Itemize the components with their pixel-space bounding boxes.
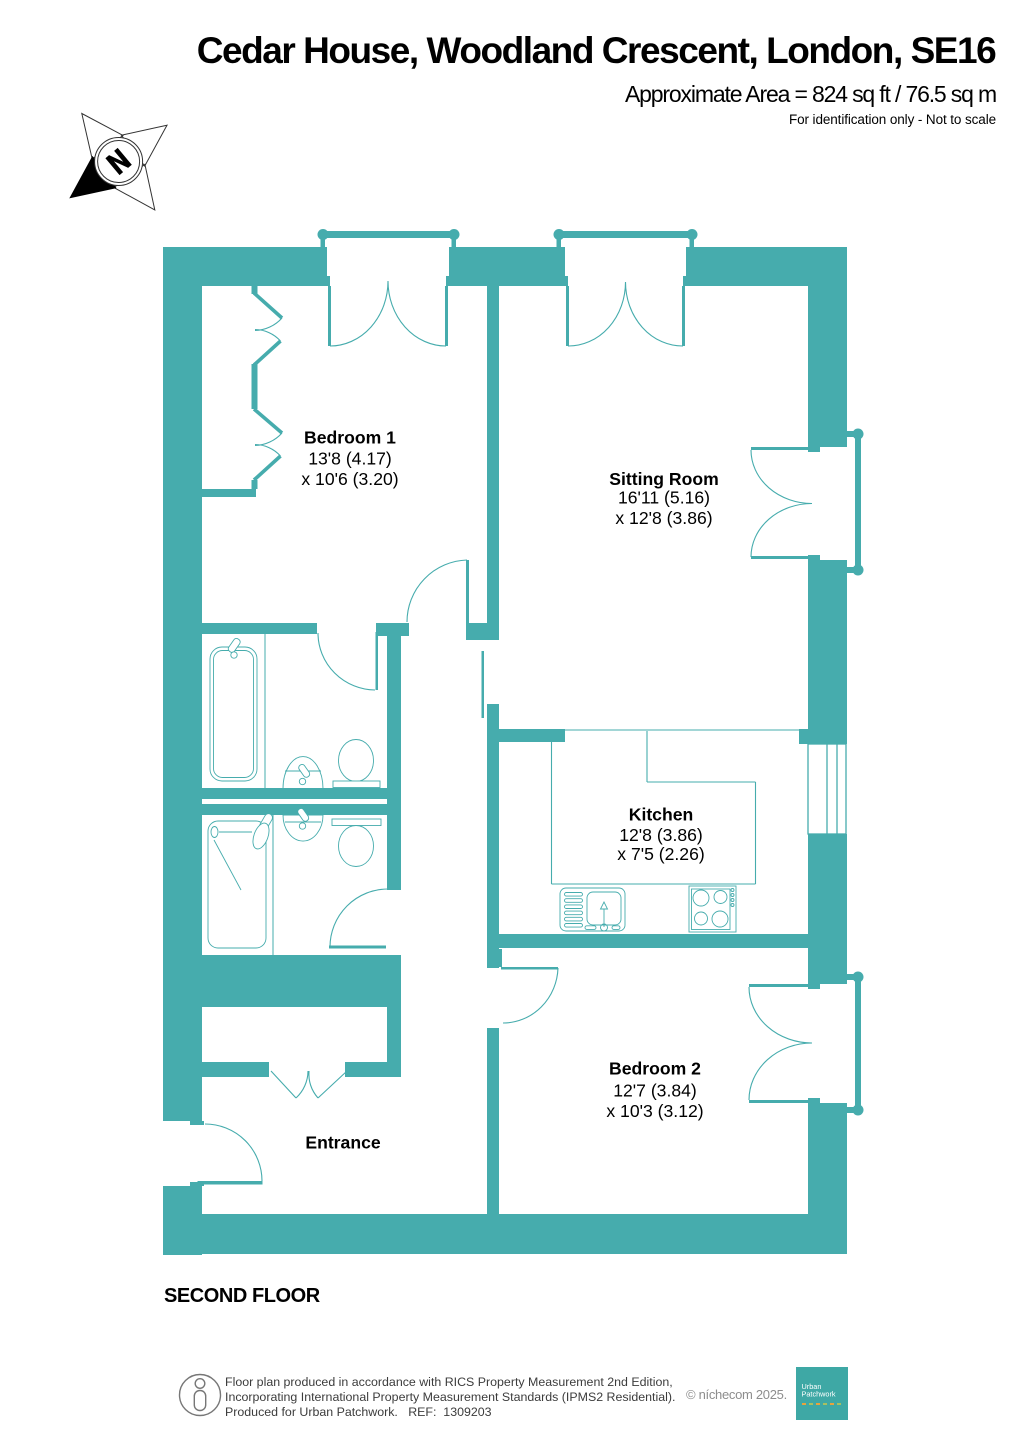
svg-text:13'8 (4.17): 13'8 (4.17) — [308, 449, 392, 469]
svg-text:12'7 (3.84): 12'7 (3.84) — [613, 1081, 697, 1101]
svg-text:x 7'5 (2.26): x 7'5 (2.26) — [617, 844, 704, 864]
svg-text:Patchwork: Patchwork — [802, 1390, 836, 1399]
svg-text:Bedroom 1: Bedroom 1 — [304, 428, 396, 448]
svg-text:Kitchen: Kitchen — [629, 805, 694, 825]
svg-text:Produced for Urban Patchwork.: Produced for Urban Patchwork. REF: 13092… — [225, 1405, 492, 1419]
svg-text:© níchecom 2025.: © níchecom 2025. — [686, 1387, 787, 1402]
svg-text:Incorporating International Pr: Incorporating International Property Mea… — [225, 1390, 675, 1404]
svg-text:Cedar House, Woodland Crescent: Cedar House, Woodland Crescent, London, … — [197, 30, 996, 71]
svg-text:Sitting Room: Sitting Room — [609, 469, 718, 489]
svg-text:Entrance: Entrance — [305, 1133, 381, 1153]
svg-text:Bedroom 2: Bedroom 2 — [609, 1059, 701, 1079]
svg-text:x 10'3 (3.12): x 10'3 (3.12) — [606, 1101, 703, 1121]
svg-text:16'11 (5.16): 16'11 (5.16) — [618, 488, 710, 508]
svg-text:SECOND FLOOR: SECOND FLOOR — [164, 1285, 321, 1307]
svg-text:Approximate Area = 824 sq ft /: Approximate Area = 824 sq ft / 76.5 sq m — [625, 81, 996, 107]
svg-text:x 10'6 (3.20): x 10'6 (3.20) — [301, 469, 398, 489]
svg-text:x 12'8 (3.86): x 12'8 (3.86) — [615, 508, 712, 528]
svg-text:For identification only - Not: For identification only - Not to scale — [789, 112, 996, 127]
svg-text:Floor plan produced in accorda: Floor plan produced in accordance with R… — [225, 1375, 673, 1389]
svg-text:12'8 (3.86): 12'8 (3.86) — [619, 825, 703, 845]
